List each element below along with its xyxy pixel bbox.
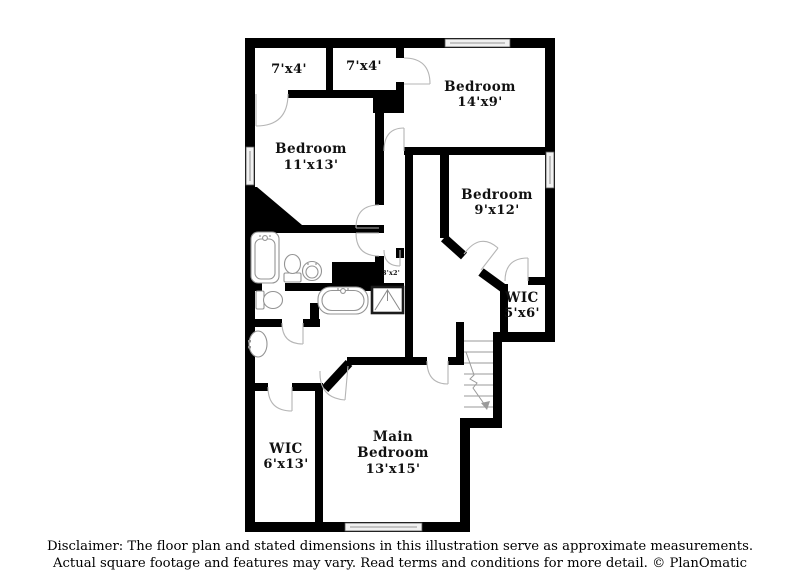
window-icon bbox=[445, 39, 510, 47]
bathtub-icon bbox=[318, 287, 368, 314]
door-arc-icon bbox=[505, 258, 528, 281]
door-arc-icon bbox=[356, 233, 379, 256]
staircase-icon bbox=[464, 341, 493, 410]
door-arc-icon bbox=[404, 58, 430, 84]
floor-plan-svg: 7'x4' 7'x4' Bedroom 14'x9' Bedroom 11'x1… bbox=[0, 0, 800, 582]
room-name-label: Main bbox=[373, 429, 413, 445]
room-wic-5x6: WIC 5'x6' bbox=[504, 290, 540, 321]
room-name-label: WIC bbox=[268, 441, 302, 457]
door-arc-icon bbox=[256, 94, 288, 126]
window-icon bbox=[246, 147, 254, 185]
room-main-bedroom: Main Bedroom 13'x15' bbox=[357, 429, 429, 477]
room-bedroom-11x13: Bedroom 11'x13' bbox=[275, 141, 347, 173]
room-dims-label: 7'x4' bbox=[346, 59, 382, 74]
door-arc-icon bbox=[282, 323, 303, 344]
fixtures bbox=[248, 232, 493, 410]
room-dims-label: 5'x6' bbox=[504, 306, 540, 321]
room-dims-label: 3'x2' bbox=[382, 269, 400, 277]
disclaimer-line-2: Actual square footage and features may v… bbox=[52, 556, 747, 571]
disclaimer: Disclaimer: The floor plan and stated di… bbox=[47, 539, 753, 571]
door-arc-icon bbox=[356, 205, 379, 228]
toilet-icon bbox=[256, 291, 283, 309]
room-bedroom-9x12: Bedroom 9'x12' bbox=[461, 187, 533, 218]
room-name-label: Bedroom bbox=[275, 141, 347, 157]
room-name-label: WIC bbox=[504, 290, 538, 306]
room-name-label: Bedroom bbox=[444, 79, 516, 95]
door-arc-icon bbox=[384, 128, 404, 151]
room-dims-label: 9'x12' bbox=[474, 203, 519, 218]
door-arc-icon bbox=[268, 387, 292, 411]
shower-icon bbox=[372, 287, 403, 313]
bathtub-icon bbox=[251, 232, 279, 283]
room-dims-label: 13'x15' bbox=[366, 462, 421, 477]
room-name-label: Bedroom bbox=[357, 445, 429, 461]
room-bedroom-14x9: Bedroom 14'x9' bbox=[444, 79, 516, 110]
room-dims-label: 11'x13' bbox=[284, 158, 339, 173]
window-icon bbox=[345, 523, 422, 531]
door-arc-icon bbox=[427, 361, 448, 384]
floor-plan-page: 7'x4' 7'x4' Bedroom 14'x9' Bedroom 11'x1… bbox=[0, 0, 800, 582]
disclaimer-line-1: Disclaimer: The floor plan and stated di… bbox=[47, 539, 753, 554]
room-name-label: Bedroom bbox=[461, 187, 533, 203]
window-icon bbox=[546, 152, 554, 188]
room-dims-label: 7'x4' bbox=[271, 62, 307, 77]
room-closet-top-right: 7'x4' bbox=[346, 59, 382, 74]
door-arc-icon bbox=[464, 241, 498, 270]
room-dims-label: 14'x9' bbox=[457, 95, 502, 110]
pedestal-sink-icon bbox=[303, 262, 322, 281]
room-wic-6x13: WIC 6'x13' bbox=[263, 441, 308, 472]
room-dims-label: 6'x13' bbox=[263, 457, 308, 472]
room-closet-3x2: 3'x2' bbox=[382, 269, 400, 277]
room-closet-top-left: 7'x4' bbox=[271, 62, 307, 77]
toilet-icon bbox=[284, 255, 301, 283]
